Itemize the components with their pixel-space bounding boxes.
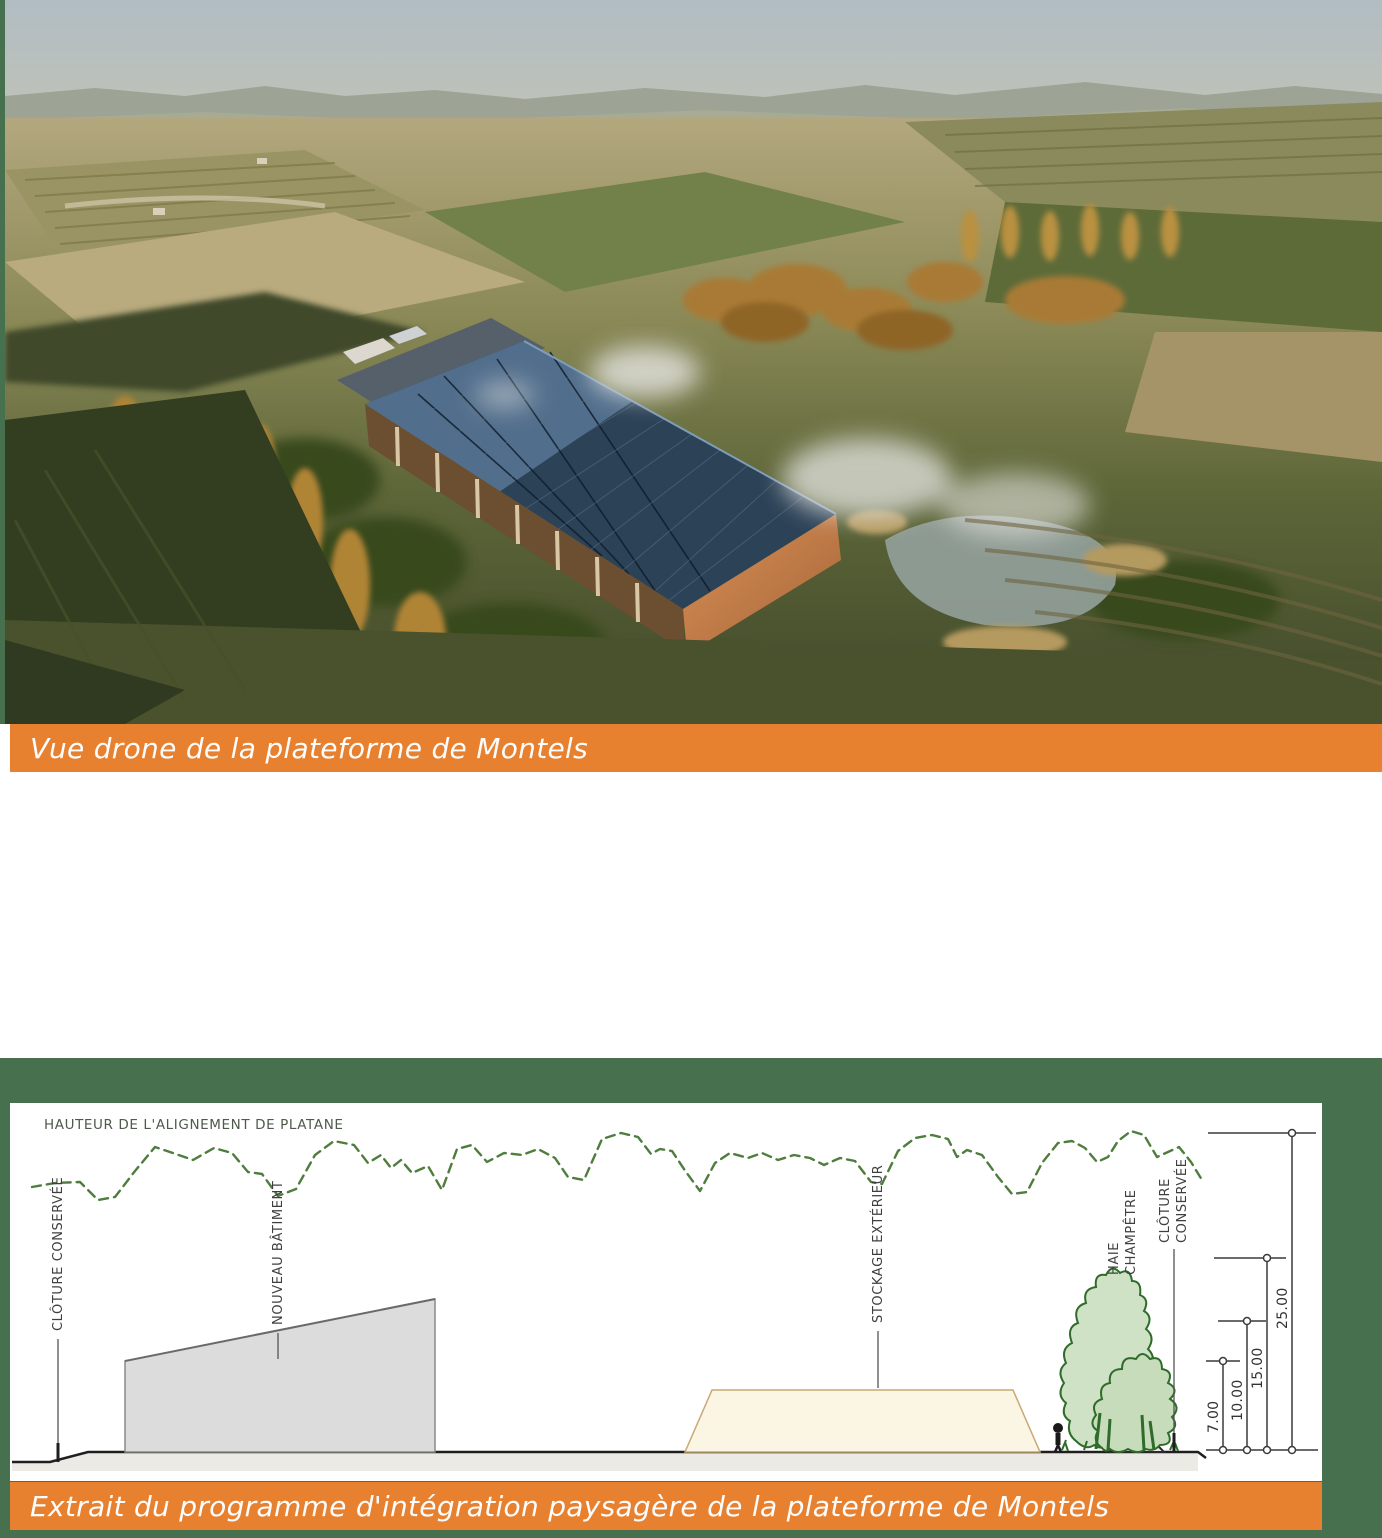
drone-photo-block	[0, 0, 1382, 724]
storage-mound-shape	[685, 1390, 1040, 1452]
label-haie-2: CHAMPÊTRE	[1123, 1189, 1139, 1275]
label-nouveau-batiment: NOUVEAU BÂTIMENT	[270, 1181, 286, 1325]
landscape-diagram-block: HAUTEUR DE L'ALIGNEMENT DE PLATANE	[0, 1058, 1382, 1538]
dim-10: 10.00	[1230, 1379, 1246, 1421]
dim-25: 25.00	[1275, 1287, 1291, 1329]
landscape-diagram-panel: HAUTEUR DE L'ALIGNEMENT DE PLATANE	[10, 1103, 1322, 1481]
diagram-title: HAUTEUR DE L'ALIGNEMENT DE PLATANE	[44, 1117, 344, 1133]
dim-7: 7.00	[1206, 1401, 1222, 1433]
drone-photo	[5, 0, 1382, 724]
label-cloture-right-2: CONSERVÉE	[1174, 1158, 1190, 1243]
label-stockage: STOCKAGE EXTÉRIEUR	[870, 1165, 886, 1323]
photo-caption: Vue drone de la plateforme de Montels	[10, 732, 588, 765]
label-cloture-right-1: CLÔTURE	[1157, 1178, 1173, 1243]
dim-15: 15.00	[1250, 1347, 1266, 1389]
hedge-trees	[1060, 1268, 1178, 1452]
label-haie-1: HAIE	[1107, 1242, 1122, 1275]
landscape-section-diagram: HAUTEUR DE L'ALIGNEMENT DE PLATANE	[10, 1103, 1322, 1481]
treeline-dashed	[32, 1131, 1202, 1200]
photo-caption-bar: Vue drone de la plateforme de Montels	[10, 724, 1382, 772]
human-figure	[1053, 1423, 1063, 1452]
diagram-caption-bar: Extrait du programme d'intégration paysa…	[10, 1482, 1322, 1530]
diagram-caption: Extrait du programme d'intégration paysa…	[10, 1490, 1109, 1523]
ground-strip	[12, 1452, 1198, 1471]
document-page: Vue drone de la plateforme de Montels	[0, 0, 1382, 1538]
label-cloture-left: CLÔTURE CONSERVÉE	[50, 1177, 66, 1331]
key-figures-section: Puissance installée 150 kWc Projet initi…	[0, 772, 1382, 1058]
dimension-lines	[1206, 1130, 1318, 1454]
